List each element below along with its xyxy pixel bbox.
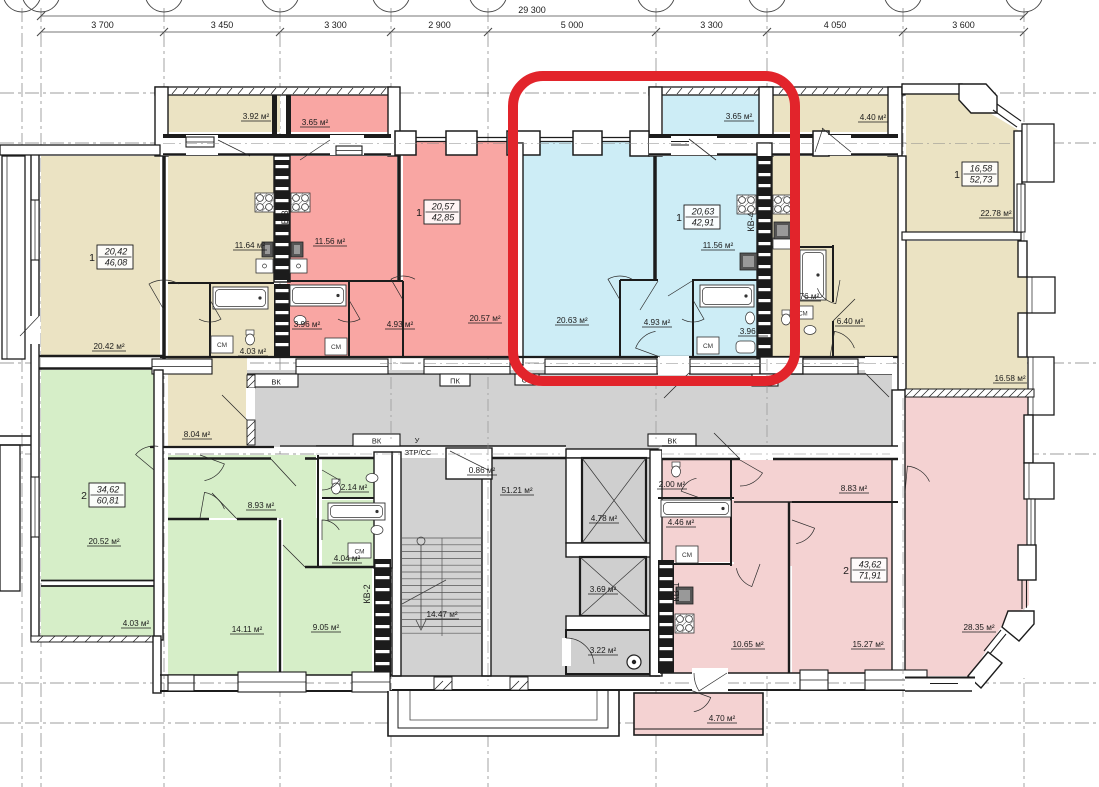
- svg-text:ЗТР/СС: ЗТР/СС: [405, 448, 432, 457]
- svg-text:60,81: 60,81: [97, 496, 120, 506]
- svg-text:КВ-1: КВ-1: [671, 582, 681, 601]
- svg-text:11.64 м²: 11.64 м²: [235, 241, 266, 250]
- svg-text:20.57 м²: 20.57 м²: [469, 314, 500, 323]
- svg-text:5 000: 5 000: [561, 20, 584, 30]
- svg-text:20.52 м²: 20.52 м²: [88, 537, 119, 546]
- svg-text:ВК: ВК: [667, 437, 677, 446]
- svg-text:2.14 м²: 2.14 м²: [341, 483, 368, 492]
- svg-text:3 300: 3 300: [324, 20, 347, 30]
- svg-text:8.83 м²: 8.83 м²: [841, 484, 868, 493]
- svg-text:42,85: 42,85: [432, 213, 456, 223]
- svg-text:ВК: ВК: [271, 378, 281, 387]
- svg-text:8.93 м²: 8.93 м²: [248, 501, 275, 510]
- svg-text:46,08: 46,08: [105, 258, 128, 268]
- svg-text:14.11 м²: 14.11 м²: [232, 625, 263, 634]
- svg-text:22.78 м²: 22.78 м²: [980, 209, 1011, 218]
- svg-text:4 050: 4 050: [824, 20, 847, 30]
- svg-text:2: 2: [843, 565, 849, 577]
- svg-text:3 700: 3 700: [91, 20, 114, 30]
- svg-text:34,62: 34,62: [97, 485, 120, 495]
- svg-text:51.21 м²: 51.21 м²: [501, 486, 532, 495]
- svg-text:10.65 м²: 10.65 м²: [732, 640, 763, 649]
- svg-text:3.96 м²: 3.96 м²: [740, 327, 767, 336]
- svg-text:4.93 м²: 4.93 м²: [387, 320, 414, 329]
- svg-text:8.04 м²: 8.04 м²: [184, 430, 211, 439]
- svg-text:3 450: 3 450: [211, 20, 234, 30]
- svg-text:43,62: 43,62: [859, 560, 882, 570]
- svg-text:4.70 м²: 4.70 м²: [709, 714, 736, 723]
- svg-text:КВ-2: КВ-2: [362, 584, 372, 603]
- svg-text:11.56 м²: 11.56 м²: [703, 241, 734, 250]
- svg-text:3 300: 3 300: [700, 20, 723, 30]
- svg-text:20.63 м²: 20.63 м²: [556, 316, 587, 325]
- svg-text:0.86 м²: 0.86 м²: [469, 466, 496, 475]
- svg-text:3.69 м²: 3.69 м²: [590, 585, 617, 594]
- svg-text:20,42: 20,42: [104, 247, 128, 257]
- svg-text:3.22 м²: 3.22 м²: [590, 646, 617, 655]
- svg-text:16.58 м²: 16.58 м²: [994, 374, 1025, 383]
- svg-text:20,57: 20,57: [431, 202, 456, 212]
- svg-text:4.04 м²: 4.04 м²: [334, 554, 361, 563]
- svg-text:2: 2: [81, 490, 87, 502]
- svg-text:9.05 м²: 9.05 м²: [313, 623, 340, 632]
- svg-text:КВ-4: КВ-4: [746, 212, 756, 231]
- svg-text:11.56 м²: 11.56 м²: [315, 237, 346, 246]
- svg-text:71,91: 71,91: [859, 571, 882, 581]
- svg-text:2 900: 2 900: [428, 20, 451, 30]
- svg-text:1: 1: [676, 212, 682, 224]
- svg-text:14.47 м²: 14.47 м²: [426, 610, 457, 619]
- svg-text:16,58: 16,58: [970, 164, 993, 174]
- svg-text:СМ: СМ: [331, 344, 341, 351]
- svg-text:СМ: СМ: [217, 342, 227, 349]
- svg-text:1: 1: [89, 252, 95, 264]
- svg-text:3 600: 3 600: [952, 20, 975, 30]
- svg-text:6.40 м²: 6.40 м²: [837, 317, 864, 326]
- svg-text:3.65 м²: 3.65 м²: [726, 112, 753, 121]
- svg-text:СМ: СМ: [682, 552, 692, 559]
- svg-text:СМ: СМ: [703, 343, 713, 350]
- svg-text:КВ-3: КВ-3: [280, 210, 290, 229]
- svg-text:ПК: ПК: [450, 377, 460, 386]
- svg-text:3.92 м²: 3.92 м²: [243, 112, 270, 121]
- svg-text:2.00 м²: 2.00 м²: [659, 480, 686, 489]
- svg-text:3.65 м²: 3.65 м²: [302, 118, 329, 127]
- svg-text:У: У: [415, 436, 420, 445]
- svg-text:1: 1: [954, 169, 960, 181]
- svg-text:29 300: 29 300: [518, 5, 546, 15]
- svg-text:4.03 м²: 4.03 м²: [123, 619, 150, 628]
- svg-text:15.27 м²: 15.27 м²: [852, 640, 883, 649]
- svg-text:3.96 м²: 3.96 м²: [294, 320, 321, 329]
- svg-text:4.40 м²: 4.40 м²: [860, 113, 887, 122]
- svg-text:4.46 м²: 4.46 м²: [668, 518, 695, 527]
- svg-text:ВК: ВК: [372, 437, 382, 446]
- svg-text:52,73: 52,73: [970, 175, 993, 185]
- svg-text:28.35 м²: 28.35 м²: [963, 623, 994, 632]
- svg-text:20.42 м²: 20.42 м²: [93, 342, 124, 351]
- svg-text:42,91: 42,91: [692, 218, 715, 228]
- svg-text:4.03 м²: 4.03 м²: [240, 347, 267, 356]
- svg-text:4.93 м²: 4.93 м²: [644, 318, 671, 327]
- svg-text:1: 1: [416, 207, 422, 219]
- svg-text:4.78 м²: 4.78 м²: [591, 514, 618, 523]
- svg-text:20,63: 20,63: [691, 207, 715, 217]
